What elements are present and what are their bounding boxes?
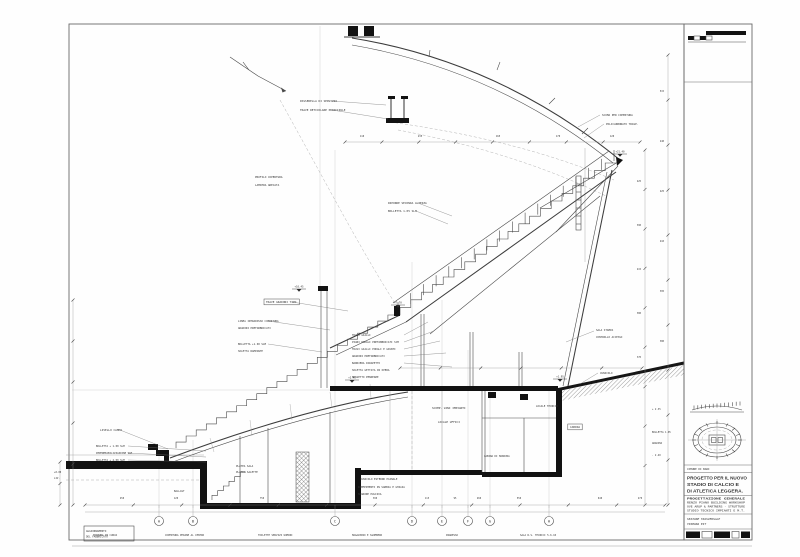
leader-line — [292, 302, 348, 311]
reference-arrow — [230, 57, 286, 93]
tier-tip-structure — [540, 157, 623, 386]
annotation-label: 390 — [373, 497, 378, 500]
grid-bubble-letter: H — [548, 520, 550, 524]
elevation-flag-triangle — [558, 379, 563, 382]
grid-bubble-letter: E — [441, 520, 443, 524]
grid-bubble-letter: B — [192, 520, 194, 524]
annotation-label: 390 — [637, 224, 642, 227]
credits-line2: RENZO PIANO BUILDING WORKSHOP — [687, 502, 746, 505]
bottom-room-label: INGRESSO — [446, 533, 459, 537]
annotation-label: LOCALE UFFICI — [438, 420, 460, 424]
elevation-flag-triangle — [297, 289, 302, 292]
annotation-label: 120 — [610, 135, 615, 138]
annotation-label: MASSETTO PENDENZE — [352, 375, 379, 379]
annotation-label: BOLLETTA +1.00 SLM — [238, 342, 267, 346]
annotation-label: 170 — [556, 135, 561, 138]
annotation-label: 440 — [660, 140, 665, 143]
annotation-label: 380 — [637, 312, 642, 315]
stadium-plan-icon — [688, 419, 746, 461]
annotation-label: PLATEA SALETTE — [236, 470, 258, 474]
annotation-label: SOLETTA RAMPANTE — [238, 349, 263, 353]
annotation-label: 640 — [598, 497, 603, 500]
annotation-label: 115 — [425, 497, 430, 500]
left-retaining-wall — [200, 461, 207, 508]
annotation-label: SOLETTA GETTATA IN OPERA — [352, 368, 390, 372]
annotation-label: 165 — [496, 135, 501, 138]
annotation-label: PASSERELLA DI SERVIZIO — [300, 99, 337, 103]
mid-dimension-chain — [399, 367, 644, 370]
annotation-label: CABINA — [570, 425, 580, 429]
annotation-label: CONTROLLO ACCESSI — [596, 335, 623, 339]
left-dimension-chain — [59, 299, 75, 507]
annotation-label: LAMIERA GRECATA — [255, 183, 280, 187]
drawing-note-line2: TRIBUNA EST — [687, 522, 706, 526]
roof-beam-section — [344, 26, 380, 37]
right-floor-slab — [482, 472, 560, 477]
leader-line — [404, 353, 446, 356]
credits-line3: OVE ARUP & PARTNERS - STRUTTURE — [687, 506, 746, 509]
drawing-sheet: +10.45+7.70+2.45+1.95+21.40 ABCDEFGHTRIB… — [0, 0, 800, 557]
annotation-label: RIEMPIMENTO IN SABBIA E GHIAIA — [358, 485, 405, 489]
leader-line — [120, 430, 168, 449]
bottom-room-label: SALA R.S. TECNICI 5.6.10 — [520, 533, 557, 537]
project-title-line2: STADIO DI CALCIO E — [687, 482, 739, 487]
annotation-label: CUNICOLO — [600, 371, 613, 375]
ground-slope-right — [556, 363, 684, 402]
annotation-label: 120 — [174, 497, 179, 500]
annotation-label: + 2.35 — [652, 408, 661, 411]
annotation-label: 95 — [454, 497, 457, 500]
annotation-label: 235 — [418, 135, 423, 138]
annotation-label: SCOMA PER COPERTURA — [602, 113, 633, 117]
leader-line — [578, 115, 600, 127]
annotation-label: LOCALE TECNICO — [536, 404, 558, 408]
service-catwalk — [386, 96, 409, 123]
credits-line4: STUDIO TECNICO IMPIANTI E M.T. — [687, 510, 745, 513]
annotation-label: POLICARBONATO TRASP. — [606, 122, 638, 126]
annotation-label: BOLLETTA + 1.00 SLM — [96, 444, 125, 448]
annotation-label: BOLLETTA 1.05 SLM — [388, 209, 417, 213]
annotation-label: BALLAST — [174, 489, 185, 493]
annotation-label: 425 — [660, 190, 665, 193]
support-columns — [421, 314, 522, 386]
leader-line — [584, 124, 604, 138]
bottom-dimension-chain — [84, 504, 667, 513]
right-wall — [556, 388, 562, 477]
top-dimension-chain — [344, 141, 642, 144]
section-drawing: +10.45+7.70+2.45+1.95+21.40 ABCDEFGHTRIB… — [0, 0, 800, 557]
annotation-label: +0.00 — [54, 471, 62, 474]
annotation-label: TRAVI GIALLI — [352, 333, 371, 337]
stadium-elevation-icon — [690, 402, 744, 413]
annotation-label: PLATEA SALA — [236, 464, 254, 468]
annotation-label: 260 — [477, 497, 482, 500]
basement — [66, 388, 562, 509]
annotation-label: - 2.40 — [652, 454, 661, 457]
annotation-labels: PASSERELLA DI SERVIZIOTRAVE RETICOLARE P… — [54, 90, 671, 500]
handrail — [393, 151, 609, 303]
handrail-posts — [398, 150, 614, 313]
raking-column — [568, 170, 612, 386]
leader-line — [416, 211, 448, 224]
title-block: COMUNE DI BARI PROGETTO PER IL NUOVO STA… — [684, 24, 752, 540]
bottom-room-label: COPERTURA PEDANE AL CENTRO — [165, 533, 205, 537]
annotation-label: PROFILO COPERTURA — [255, 175, 283, 179]
leader-line — [404, 322, 428, 335]
leader-line — [566, 331, 594, 342]
vomitory-wall — [318, 286, 328, 388]
annotation-label: 550 — [517, 497, 522, 500]
annotation-label: 110 — [360, 135, 365, 138]
elevation-value: +7.70 — [394, 301, 402, 305]
upper-tier-stand — [330, 150, 616, 355]
leader-line — [404, 363, 452, 367]
mid-floor-slab — [358, 470, 482, 475]
grid-bubbles: ABCDEFGHTRIBUNA IN CURVACOPERTURA PEDANE… — [93, 505, 557, 537]
deep-floor-slab — [200, 503, 360, 509]
annotation-label: TRAVI GIALLI PODALI E GIUNTI — [352, 347, 396, 351]
annotation-label: 425 — [637, 180, 642, 183]
grid-bubble-letter: F — [467, 520, 469, 524]
project-title-line3: DI ATLETICA LEGGERA. — [687, 489, 743, 494]
annotation-label: TRAVE RETICOLARE PRINCIPALE — [300, 108, 346, 112]
leader-line — [404, 341, 440, 349]
drawing-note-line1: SEZIONE TRASVERSALE — [687, 517, 720, 521]
pitch-slab — [66, 461, 206, 469]
grid-bubble-letter: G — [489, 520, 491, 524]
annotation-label: 415 — [637, 268, 642, 271]
corner-box-line1: AGGIORNAMENTO — [86, 529, 107, 533]
annotation-label: 410 — [660, 240, 665, 243]
project-title-line1: PROGETTO PER IL NUOVO — [687, 476, 748, 481]
concourse-slab — [330, 386, 558, 391]
annotation-label: LINEA INTRADOSSO COPERTURA — [238, 319, 279, 323]
annotation-label: 515 — [660, 90, 665, 93]
leader-line — [332, 101, 386, 105]
elevation-value: +21.40 — [615, 150, 625, 154]
annotation-label: GRADONI PREFABBRICATI — [238, 326, 271, 330]
annotation-label: LIV. — [54, 477, 60, 480]
corner-box-line2: DEL FABBRICATO — [86, 535, 108, 539]
grid-bubble-letter: A — [158, 520, 161, 524]
annotation-label: GRADINI — [652, 442, 663, 445]
annotation-label: 380 — [660, 340, 665, 343]
annotation-label: MAGRONE PULIZIA — [358, 492, 382, 496]
annotation-label: 270 — [638, 497, 643, 500]
annotation-label: SALA STAMPA — [596, 328, 614, 332]
grid-bubble-letter: C — [334, 520, 336, 524]
elevation-flag-triangle — [618, 154, 623, 157]
annotation-label: GRADONI PREFABBRICATI — [352, 354, 385, 358]
basement-stair — [212, 472, 246, 500]
annotation-label: 750 — [260, 497, 265, 500]
annotation-label: TRAVE GRADONI TIPO — [266, 300, 297, 304]
elevation-flag-triangle — [350, 380, 355, 383]
annotation-label: CUNICOLO ESTERNO PIANALE — [360, 477, 398, 481]
annotation-label: BOLLETTA 1.05 — [652, 431, 671, 434]
bottom-room-label: MAGAZZINO E SGOMBERO — [352, 533, 383, 537]
annotation-label: BARRIERA PARAPETTO — [352, 361, 381, 365]
elevation-value: +10.45 — [294, 285, 304, 289]
grid-bubble-letter: D — [411, 520, 413, 524]
scale-bar — [688, 31, 746, 42]
roof-arc — [280, 38, 620, 308]
titleblock-bottom-strip — [686, 532, 750, 539]
annotation-label: IMPERMEABILIZZAZIONE SLM — [96, 451, 133, 455]
leader-line — [268, 344, 322, 352]
municipality-label: COMUNE DI BARI — [687, 467, 710, 471]
annotation-label: BOLLETTA + 4.00 SLM — [96, 458, 125, 462]
annotation-label: LIVELLO CAMPO — [100, 428, 122, 432]
right-dimension-chains — [644, 54, 670, 507]
annotation-label: SCOMP. VANI IMPIANTI — [432, 406, 466, 410]
annotation-label: CABINA DI MANOVRA — [484, 454, 510, 458]
annotation-label: PIANI PODALI PREFABBRICATI SCM — [352, 340, 399, 344]
annotation-label: 450 — [120, 497, 125, 500]
annotation-label: 395 — [660, 290, 665, 293]
bottom-room-label: TOILETTE SERVIZI UOMINI — [258, 533, 293, 537]
leader-lines — [120, 101, 604, 462]
annotation-label: 370 — [637, 356, 642, 359]
credits-line1: PROGETTAZIONE GENERALE — [687, 498, 746, 501]
elevation-flags: +10.45+7.70+2.45+1.95+21.40 — [292, 150, 627, 383]
annotation-label: RIPORRE SECONDA ALTEZZA — [388, 201, 427, 205]
elevation-value: +1.95 — [556, 375, 564, 379]
